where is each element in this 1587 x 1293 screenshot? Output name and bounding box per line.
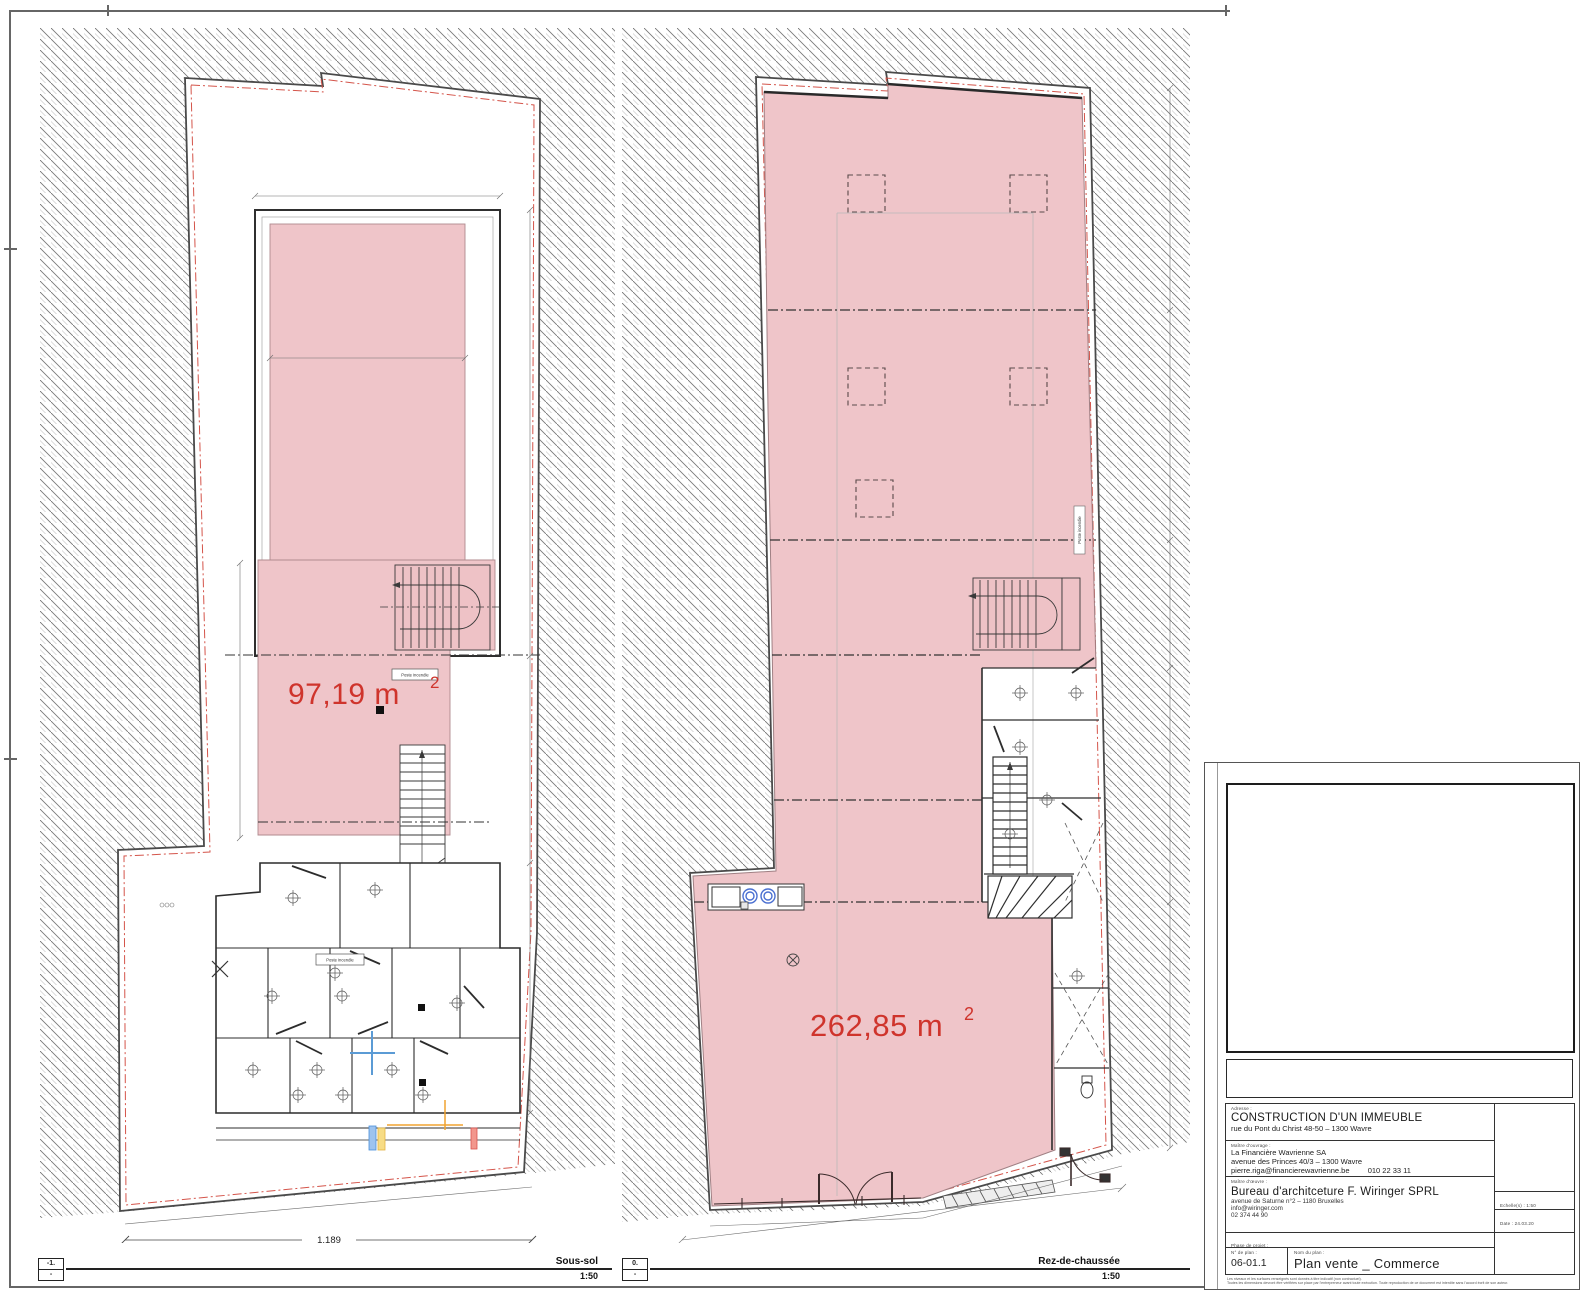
client-contact: pierre.riga@financierewavrienne.be 010 2… — [1231, 1166, 1494, 1175]
date-cell: Date : 24.03.20 — [1495, 1210, 1575, 1233]
electric-mark-red — [471, 1128, 477, 1149]
dimension-value: 1.189 — [317, 1235, 341, 1243]
cellar-rooms — [216, 863, 520, 1140]
architect-address: avenue de Saturne n°2 – 1180 Bruxelles — [1231, 1198, 1494, 1205]
architect-phone: 02 374 44 90 — [1231, 1212, 1494, 1219]
level-code: -1. — [39, 1259, 63, 1270]
plan-name-cell: Nom du plan : Plan vente _ Commerce — [1289, 1248, 1494, 1274]
architect-label: Maître d'œuvre : — [1231, 1179, 1494, 1184]
fold-tick-top-2 — [1225, 5, 1227, 16]
plan-sous-sol-drawing: Poste incendie Poste incendie 1.189 — [40, 28, 615, 1243]
architect-email: info@wiringer.com — [1231, 1205, 1494, 1212]
drawing-sheet: Poste incendie Poste incendie 1.189 — [0, 0, 1587, 1293]
stair-main — [968, 578, 1080, 650]
plan-scale-rdc: 1:50 — [940, 1271, 1120, 1281]
water-mark-blue — [369, 1126, 376, 1150]
footer-rule-rdc — [650, 1268, 1190, 1270]
disclaimer-line-2: Toutes les dimensions devront être vérif… — [1227, 1281, 1557, 1285]
level-tag-rdc: 0. - — [622, 1258, 648, 1281]
architect-row: Maître d'œuvre : Bureau d'architceture F… — [1226, 1177, 1494, 1233]
client-name: La Financière Wavrienne SA — [1231, 1148, 1494, 1157]
area-exponent: 2 — [430, 673, 439, 692]
project-address: rue du Pont du Christ 48-50 – 1300 Wavre — [1231, 1124, 1494, 1133]
area-value: 97,19 m — [288, 678, 400, 711]
poste-incendie-label: Poste incendie — [401, 673, 429, 678]
area-exponent: 2 — [964, 1004, 974, 1024]
plan-name: Plan vente _ Commerce — [1294, 1256, 1494, 1271]
address-label: Adresse : — [1231, 1106, 1494, 1111]
plan-number: 06-01.1 — [1231, 1257, 1287, 1269]
plan-rez-de-chaussee-drawing: Poste incendie — [622, 28, 1190, 1243]
client-row: Maître d'ouvrage : La Financière Wavrien… — [1226, 1141, 1494, 1177]
disclaimer-text: Les niveaux et les surfaces renseignés s… — [1227, 1277, 1557, 1286]
level-sub: - — [39, 1270, 63, 1279]
project-title: CONSTRUCTION D'UN IMMEUBLE — [1231, 1112, 1494, 1124]
client-address: avenue des Princes 40/3 – 1300 Wavre — [1231, 1157, 1494, 1166]
kitchen-counter — [708, 884, 804, 910]
plan-name-label: Nom du plan : — [1294, 1250, 1494, 1255]
date-value: Date : 24.03.20 — [1500, 1221, 1534, 1226]
plan-scale-sous-sol: 1:50 — [420, 1271, 598, 1281]
title-block-info: Echelle(s) : 1:50 Date : 24.03.20 Adress… — [1225, 1103, 1575, 1275]
scale-value: Echelle(s) : 1:50 — [1500, 1203, 1536, 1208]
level-tag-sous-sol: -1. - — [38, 1258, 64, 1281]
fold-tick-left-1 — [4, 248, 17, 250]
client-email: pierre.riga@financierewavrienne.be — [1231, 1166, 1350, 1175]
stair-service — [993, 757, 1027, 874]
poste-incendie-label: Poste incendie — [326, 958, 354, 963]
stair-upper — [380, 565, 500, 650]
level-sub: - — [623, 1270, 647, 1279]
stair-winder — [988, 876, 1072, 918]
architect-name: Bureau d'architceture F. Wiringer SPRL — [1231, 1186, 1494, 1198]
level-code: 0. — [623, 1259, 647, 1270]
fold-tick-left-2 — [4, 758, 17, 760]
logo-box — [1226, 783, 1575, 1053]
phase-row: Phase de projet : Commerce — [1226, 1233, 1494, 1248]
revision-strip — [1226, 1059, 1573, 1098]
fold-tick-top-1 — [107, 5, 109, 16]
sheet-border-left — [9, 10, 11, 1287]
sheet-border-top — [9, 10, 1230, 12]
black-square-symbol — [419, 1079, 426, 1086]
black-square-symbol — [418, 1004, 425, 1011]
area-value: 262,85 m — [810, 1008, 943, 1043]
plan-number-cell: N° de plan : 06-01.1 — [1226, 1248, 1288, 1274]
poste-incendie-label: Poste incendie — [1077, 516, 1082, 544]
plan-title-sous-sol: Sous-sol — [420, 1256, 598, 1267]
gas-mark-yellow — [378, 1128, 385, 1150]
title-block-fold-line — [1217, 763, 1218, 1289]
title-block-right-column: Echelle(s) : 1:50 Date : 24.03.20 — [1494, 1104, 1574, 1274]
title-block: Echelle(s) : 1:50 Date : 24.03.20 Adress… — [1204, 762, 1580, 1290]
address-row: Adresse : CONSTRUCTION D'UN IMMEUBLE rue… — [1226, 1104, 1494, 1141]
scale-cell: Echelle(s) : 1:50 — [1495, 1192, 1575, 1210]
client-phone: 010 22 33 11 — [1368, 1166, 1411, 1175]
plan-title-rdc: Rez-de-chaussée — [940, 1256, 1120, 1267]
footer-rule-sous-sol — [66, 1268, 612, 1270]
plan-number-label: N° de plan : — [1231, 1250, 1287, 1255]
poste-incendie-box: Poste incendie — [1074, 506, 1085, 554]
